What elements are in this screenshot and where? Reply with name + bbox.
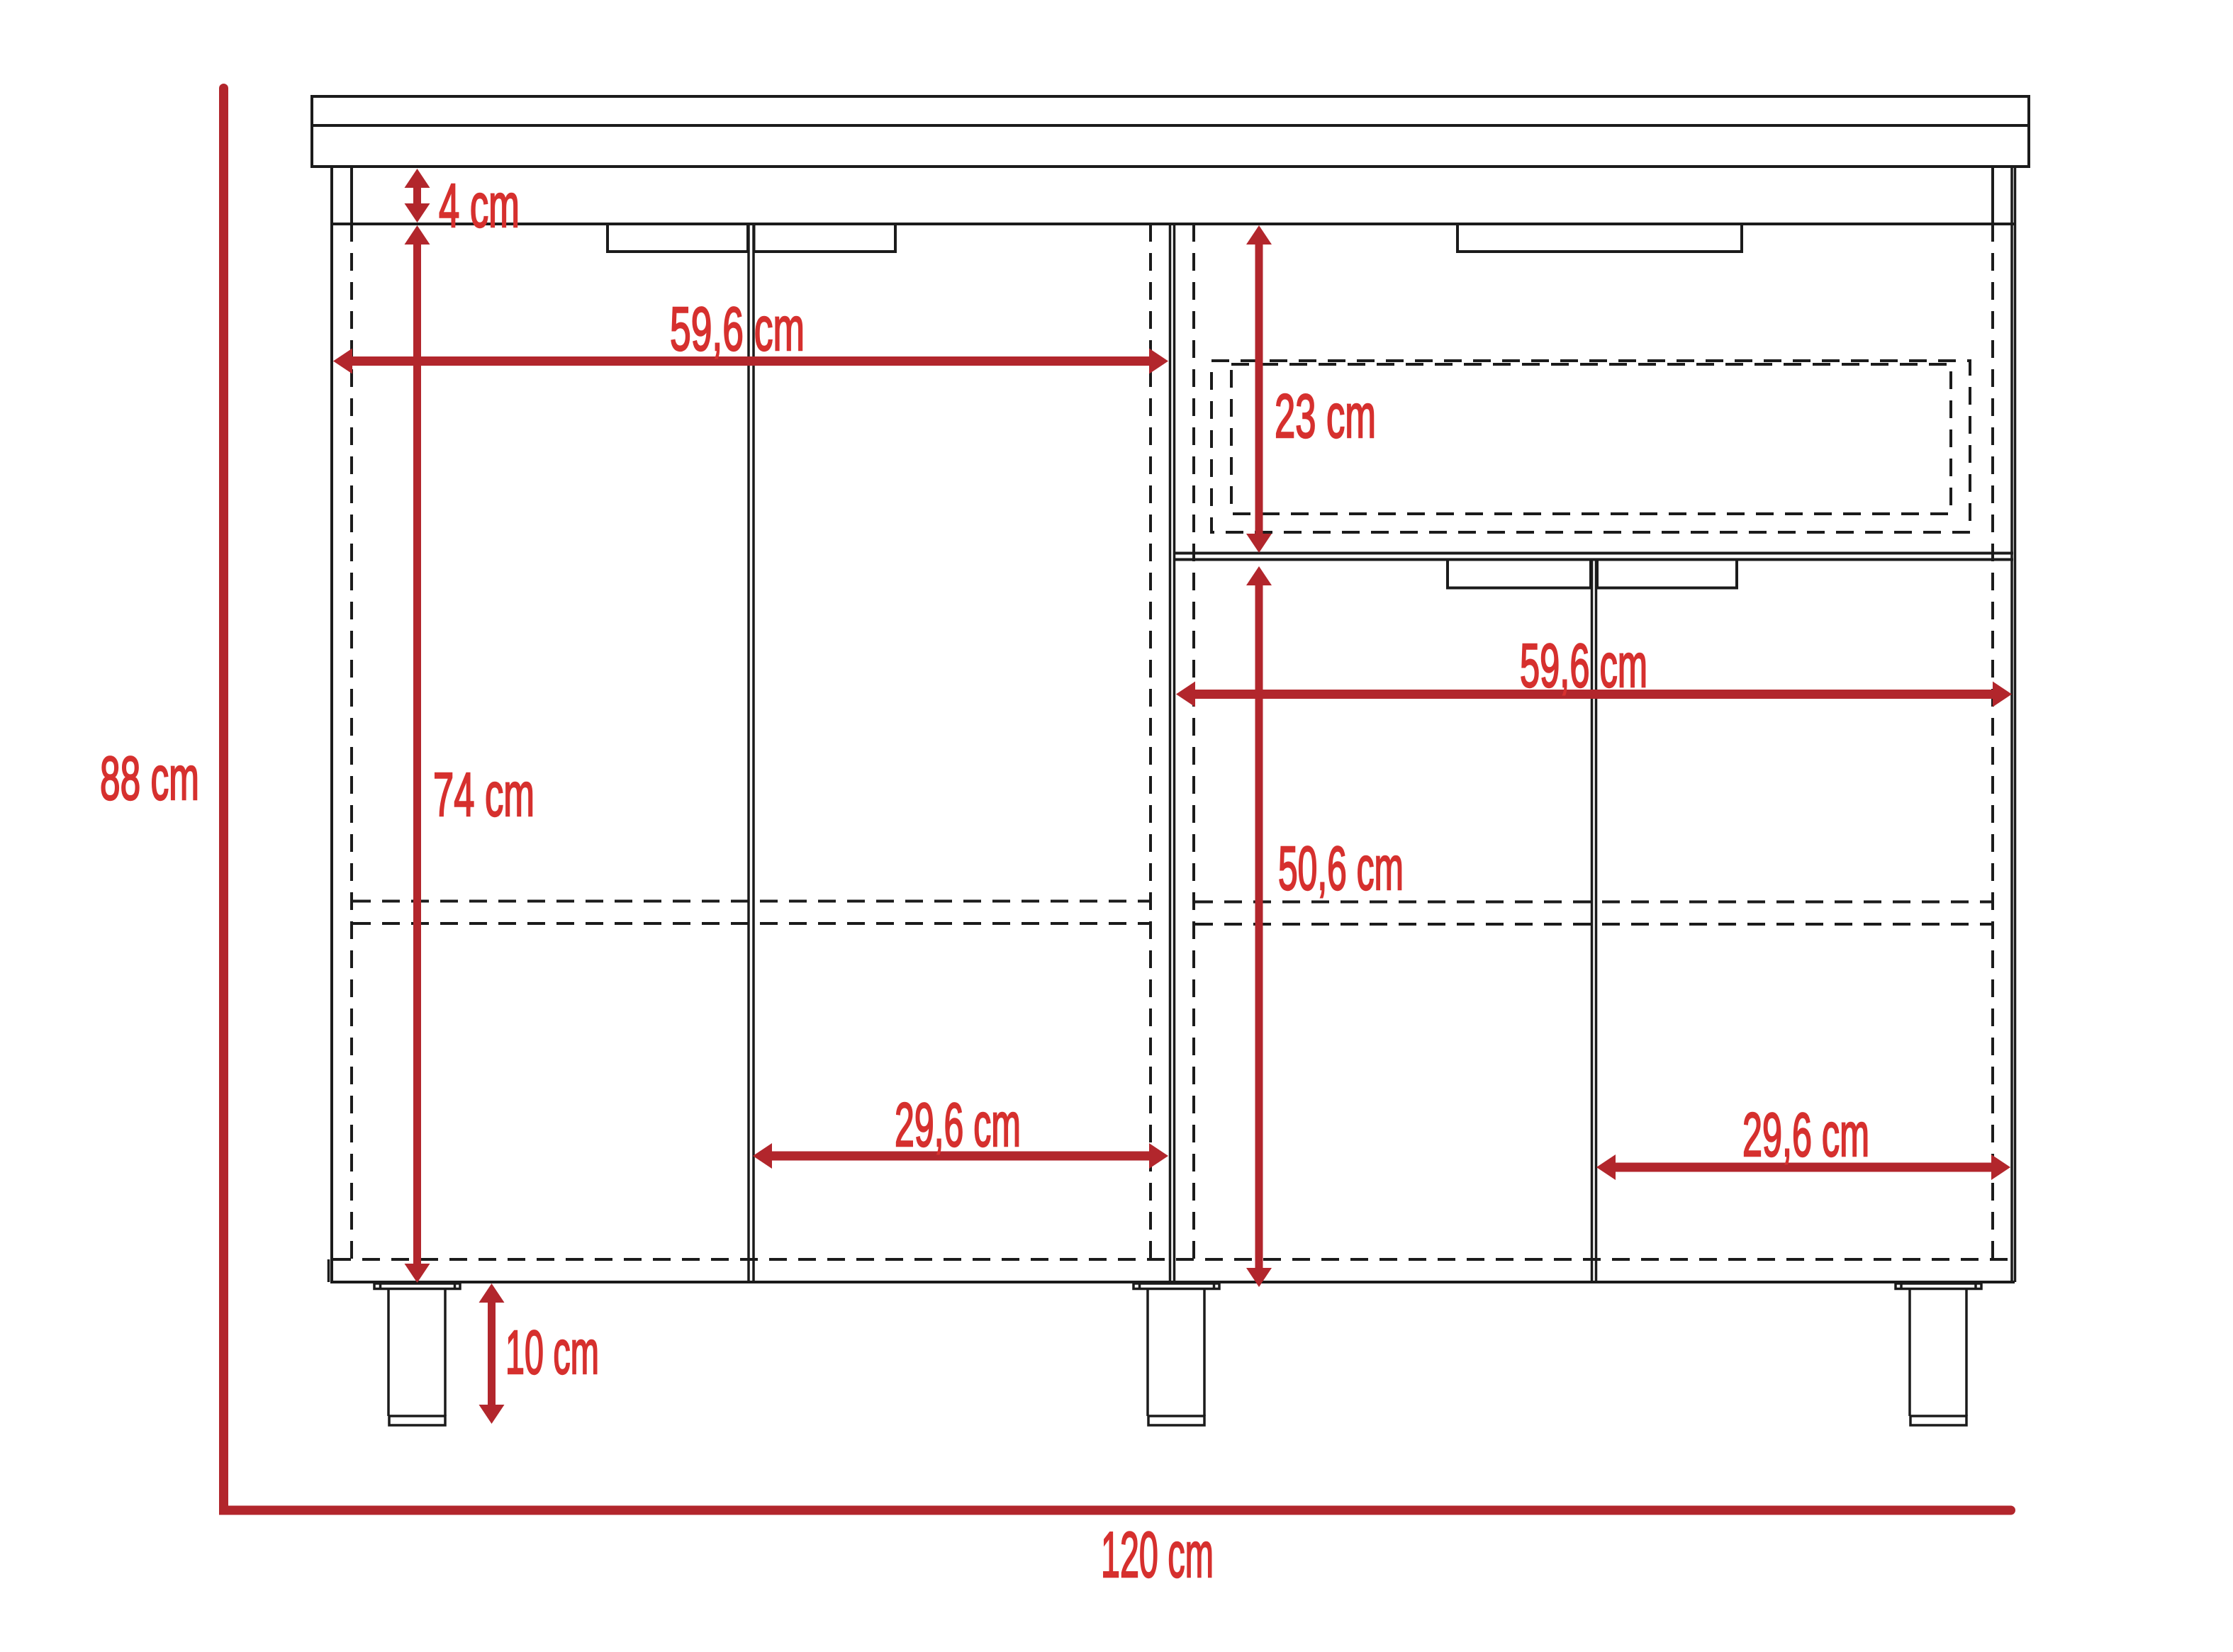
svg-text:59,6 cm: 59,6 cm — [670, 295, 805, 364]
svg-text:10 cm: 10 cm — [505, 1318, 599, 1387]
svg-text:4 cm: 4 cm — [439, 172, 520, 240]
svg-text:59,6 cm: 59,6 cm — [1520, 631, 1647, 700]
svg-text:29,6 cm: 29,6 cm — [1742, 1101, 1869, 1169]
svg-text:50,6 cm: 50,6 cm — [1278, 834, 1404, 903]
svg-text:120 cm: 120 cm — [1101, 1519, 1214, 1591]
svg-text:74 cm: 74 cm — [433, 760, 535, 829]
svg-text:88 cm: 88 cm — [100, 744, 199, 813]
svg-text:29,6 cm: 29,6 cm — [895, 1091, 1021, 1159]
svg-text:23 cm: 23 cm — [1275, 382, 1376, 451]
